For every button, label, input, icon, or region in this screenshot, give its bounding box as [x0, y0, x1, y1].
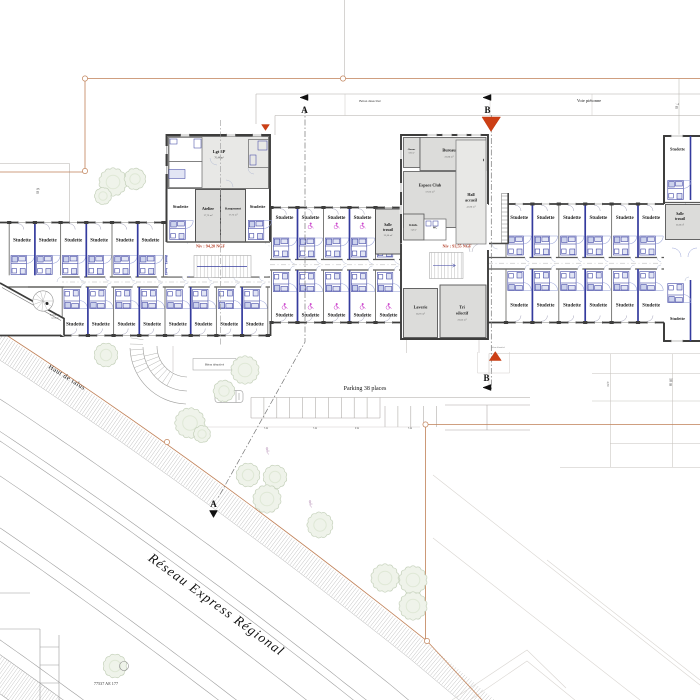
- svg-text:70,44 m²: 70,44 m²: [214, 157, 224, 160]
- svg-text:Voie piétonne: Voie piétonne: [577, 98, 601, 103]
- svg-text:Bureau: Bureau: [442, 148, 456, 153]
- svg-text:5 m: 5 m: [313, 427, 317, 430]
- svg-text:Salle: Salle: [384, 223, 392, 227]
- svg-text:Béton désactivé: Béton désactivé: [491, 347, 505, 349]
- svg-text:Alarme: Alarme: [408, 148, 416, 151]
- svg-text:Studette: Studette: [510, 216, 529, 221]
- svg-text:WC: WC: [433, 227, 438, 230]
- svg-text:travail: travail: [675, 217, 685, 221]
- svg-text:17,72 m²: 17,72 m²: [204, 214, 213, 217]
- svg-text:6 m: 6 m: [36, 188, 40, 194]
- svg-text:Studette: Studette: [616, 216, 635, 221]
- svg-text:Studette: Studette: [563, 216, 582, 221]
- svg-text:Studette: Studette: [537, 216, 556, 221]
- svg-text:Studette: Studette: [143, 323, 162, 328]
- svg-text:B: B: [483, 373, 489, 383]
- svg-text:23,06 m²: 23,06 m²: [676, 225, 685, 227]
- svg-text:Studette: Studette: [142, 239, 161, 244]
- svg-text:Studette: Studette: [380, 314, 399, 319]
- svg-text:Studette: Studette: [642, 216, 661, 221]
- svg-text:A: A: [210, 499, 217, 509]
- svg-text:Studette: Studette: [354, 314, 373, 319]
- svg-text:Studette: Studette: [39, 239, 58, 244]
- svg-text:Studette: Studette: [195, 323, 214, 328]
- svg-text:23,06 m²: 23,06 m²: [384, 234, 393, 237]
- svg-text:Studette: Studette: [642, 304, 661, 309]
- svg-text:Studette: Studette: [670, 316, 685, 321]
- svg-text:Studette: Studette: [90, 239, 109, 244]
- svg-text:Béton désactivé: Béton désactivé: [359, 99, 381, 103]
- svg-text:Hall: Hall: [467, 192, 475, 197]
- svg-text:Studette: Studette: [590, 216, 609, 221]
- svg-text:7 m: 7 m: [675, 103, 679, 109]
- svg-text:Studette: Studette: [616, 304, 635, 309]
- svg-text:Rangement: Rangement: [225, 207, 242, 211]
- svg-text:secours: secours: [51, 317, 58, 320]
- svg-text:A: A: [301, 105, 308, 115]
- svg-text:Atelier: Atelier: [202, 206, 214, 211]
- svg-text:Studette: Studette: [220, 323, 239, 328]
- svg-text:Salle: Salle: [676, 212, 684, 216]
- svg-text:22,62 m²: 22,62 m²: [458, 319, 467, 322]
- svg-text:Studette: Studette: [65, 239, 84, 244]
- svg-text:Studette: Studette: [173, 204, 189, 209]
- svg-text:Studette: Studette: [118, 323, 137, 328]
- svg-text:Studette: Studette: [276, 216, 295, 221]
- svg-text:Studette: Studette: [563, 304, 582, 309]
- svg-text:Tri: Tri: [459, 305, 465, 310]
- svg-text:Studette: Studette: [276, 314, 295, 319]
- svg-text:77537 AE 177: 77537 AE 177: [94, 681, 118, 686]
- svg-text:Studette: Studette: [302, 216, 321, 221]
- svg-text:Studette: Studette: [328, 314, 347, 319]
- svg-text:Studette: Studette: [537, 304, 556, 309]
- svg-text:Studette: Studette: [246, 323, 265, 328]
- svg-text:accueil: accueil: [465, 198, 478, 203]
- svg-text:41,86 m²: 41,86 m²: [467, 206, 476, 209]
- svg-text:Studette: Studette: [250, 204, 266, 209]
- svg-text:Studette: Studette: [328, 216, 347, 221]
- svg-text:Niv : 94,20 NGF: Niv : 94,20 NGF: [196, 244, 226, 249]
- svg-text:Béton désactivé: Béton désactivé: [205, 363, 225, 367]
- svg-text:Laverie: Laverie: [414, 305, 428, 310]
- svg-text:Espace Club: Espace Club: [419, 183, 442, 188]
- svg-text:9,02 m²: 9,02 m²: [409, 152, 415, 155]
- svg-text:Parking 38 places: Parking 38 places: [344, 386, 387, 392]
- svg-text:9 m: 9 m: [355, 427, 359, 430]
- svg-text:Studette: Studette: [92, 323, 111, 328]
- svg-text:Studette: Studette: [169, 323, 188, 328]
- svg-text:Studette: Studette: [116, 239, 135, 244]
- svg-text:36,91 m²: 36,91 m²: [416, 313, 425, 316]
- svg-text:17,72 m²: 17,72 m²: [229, 214, 238, 217]
- svg-text:B: B: [484, 105, 490, 115]
- svg-text:Lgt 3P: Lgt 3P: [213, 149, 226, 154]
- svg-text:23,86 m²: 23,86 m²: [445, 156, 454, 159]
- svg-text:Studette: Studette: [510, 304, 529, 309]
- svg-text:5 m: 5 m: [264, 427, 268, 430]
- svg-text:Studette: Studette: [670, 147, 685, 152]
- svg-text:Studette: Studette: [590, 304, 609, 309]
- svg-text:travail: travail: [383, 228, 393, 232]
- svg-text:Studette: Studette: [302, 314, 321, 319]
- svg-text:Studette: Studette: [66, 323, 85, 328]
- svg-text:10 m: 10 m: [669, 378, 674, 387]
- svg-text:7,40 m²: 7,40 m²: [411, 229, 417, 232]
- svg-text:Kitch.: Kitch.: [409, 223, 418, 227]
- svg-text:Studette: Studette: [354, 216, 373, 221]
- svg-text:sélectif: sélectif: [456, 311, 469, 316]
- svg-text:5 m: 5 m: [408, 427, 412, 430]
- svg-text:Studette: Studette: [13, 239, 32, 244]
- svg-text:57,02 m²: 57,02 m²: [426, 191, 435, 194]
